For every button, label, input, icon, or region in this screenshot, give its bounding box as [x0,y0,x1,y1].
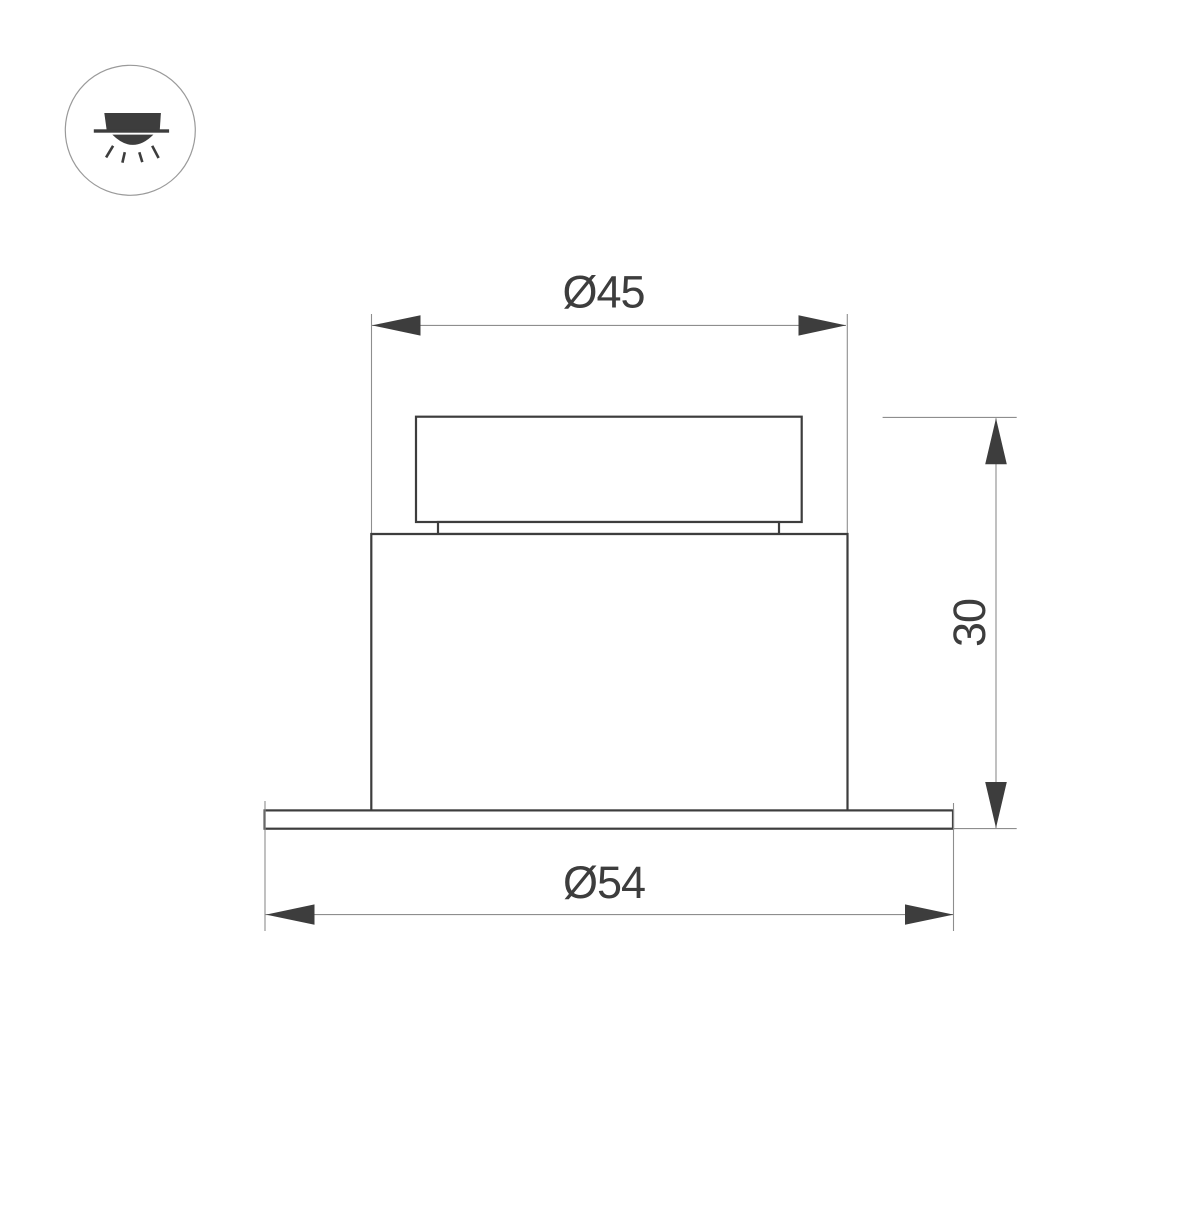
svg-text:30: 30 [944,599,995,647]
svg-text:Ø45: Ø45 [562,267,644,318]
svg-text:Ø54: Ø54 [563,857,645,908]
